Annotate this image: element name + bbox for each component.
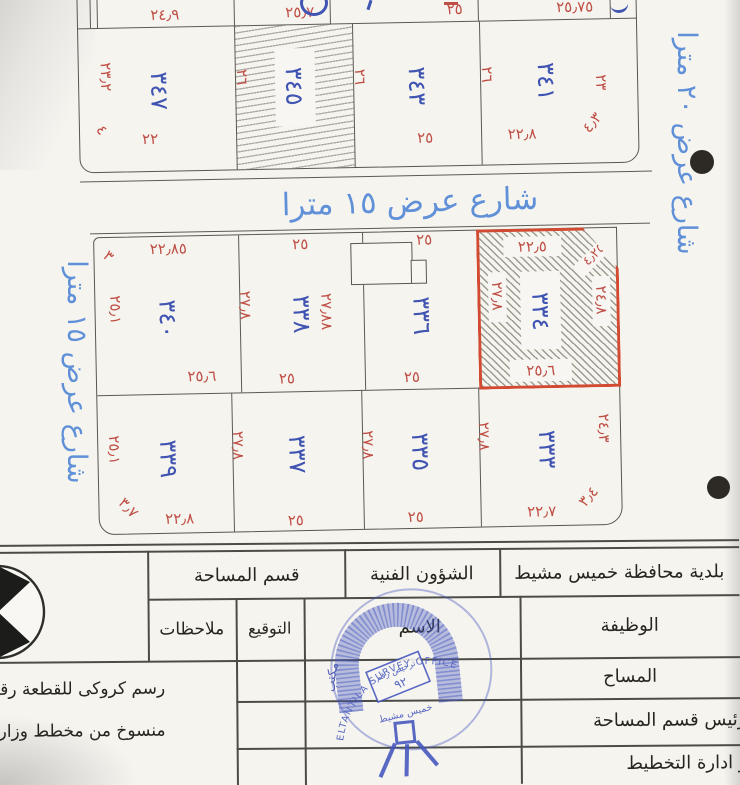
plot-number: ٣٣٥ [406, 419, 435, 484]
divider-stub [96, 0, 98, 28]
dim-side: ٢٧٫٨ [489, 274, 506, 318]
dim-side: ٢٧٫٨ [230, 423, 247, 467]
block-lower: ٢٢٫٥ ٤٫٢٥ ٢٧٫٨ ٢٤٫٨ ٣٣٤ ٢٥٫٦ ٢٢٫٨٥ ٢٥ ٢٥… [93, 227, 623, 535]
column-notes: ملاحظات [148, 614, 236, 645]
plot-number: ٣٤٠ [153, 287, 182, 352]
plot-number: ٣٣٩ [154, 427, 183, 492]
plot-number: ٣٤٧ [145, 59, 174, 124]
plot-notch-step [411, 260, 427, 284]
dim-bottom: ٢٥٫٦ [180, 368, 224, 385]
note-line: رسم كروكى للقطعة رقم [0, 676, 165, 704]
note-line: منسوخ من مخطط وزارة ال [0, 718, 166, 746]
dim-side: ٢٧٫٨ [476, 414, 493, 458]
dim-bottom: ٢٢٫٨ [500, 125, 544, 142]
dim-top: ٢٢٫٨٥ [146, 240, 190, 257]
divider-stub [477, 0, 479, 21]
stamp-theodolite-icon [375, 719, 438, 779]
plot-number: ٣٤١ [532, 49, 561, 114]
dim-side: ٢٦ [352, 55, 369, 99]
dim-right: ٢٤٫٣ [596, 406, 613, 450]
plot-number: ٣٤٣ [403, 54, 432, 119]
column-signature: التوقيع [236, 614, 304, 645]
divider-stub [329, 0, 331, 24]
plot-number: ٣٤٥ [280, 54, 309, 119]
north-arrow-icon [0, 562, 48, 662]
dim-top: ٢٤٫٩ [143, 6, 187, 23]
dim-side: ٢٦ [479, 52, 496, 96]
dim-bottom: ٢٢٫٨ [158, 510, 202, 527]
plot-number: ٣٣٣ [533, 417, 562, 482]
dim-left: ٢٥٫١ [107, 288, 124, 332]
highlighted-plot: ٢٢٫٥ ٤٫٢٥ ٢٧٫٨ ٢٤٫٨ ٣٣٤ ٢٥٫٦ [476, 227, 621, 390]
survey-sketch-sheet: ٢٤٫٩ ٢٥٫٧ ٢٥ ٢٥٫٧٥ ٢٦ ٢٦ ٢٦ ٢٣٫٢ ٤ ٢٣ ٤٫… [0, 0, 740, 785]
dim-bottom: ٢٥ [265, 370, 309, 387]
dim-top: ٢٥ [402, 231, 446, 248]
cutoff-mark [444, 2, 458, 5]
plot-notch [350, 242, 413, 285]
dim-bottom: ٢٥ [394, 508, 438, 525]
dim-bottom: ٢٥ [274, 512, 318, 529]
table-line [0, 546, 739, 553]
dim-side: ٢٧٫٨٨ [318, 289, 335, 333]
plot-number: ٣٣٦ [407, 283, 436, 348]
dim-bottom: ٢٥٫٦ [519, 362, 563, 379]
dim-bottom: ٢٥ [403, 129, 447, 146]
dim-bottom: ٢٢٫٧ [519, 503, 563, 520]
table-line [303, 598, 306, 785]
dim-top: ٢٢٫٥ [510, 238, 554, 255]
street-label-right: شارع عرض ٢٠ مترا [646, 12, 702, 274]
punch-hole [690, 150, 714, 174]
punch-hole [707, 476, 730, 499]
divider-stub [89, 0, 91, 28]
dim-corner: ٣٫٧ [112, 491, 144, 524]
dim-corner: ٤٫٣ [573, 102, 611, 143]
dim-side: ٢٤٫٨ [593, 278, 610, 322]
dim-corner: ٣٫٤ [572, 480, 604, 513]
column-role: الوظيفة [520, 610, 740, 642]
dim-corner: ٤٫٢٥ [573, 234, 615, 276]
dim-right: ٢٣ [593, 60, 610, 104]
dim-side: ٢٧٫٨ [360, 423, 377, 467]
role-planning-director: مدير ادارة التخطيط [521, 750, 740, 778]
divider-stub [233, 0, 235, 25]
street-label-left: شارع عرض ١٥ مترا [38, 243, 92, 501]
header-municipality: بلدية محافظة خميس مشيط [499, 555, 739, 591]
plot-number: ٣٣٨ [287, 282, 316, 347]
plot-number: ٣٣٧ [283, 422, 312, 487]
dim-left: ٢٥٫١ [106, 428, 123, 472]
plot-number: ٣٣٤ [526, 279, 555, 344]
table-line [0, 539, 739, 546]
role-head-survey: رئيس قسم المساحة [520, 707, 740, 735]
block-upper: ٢٤٫٩ ٢٥٫٧ ٢٥ ٢٥٫٧٥ ٢٦ ٢٦ ٢٦ ٢٣٫٢ ٤ ٢٣ ٤٫… [76, 0, 639, 173]
survey-office-stamp: مكتب الهيئة للمساحة ترخيص رقم ٩٢ خميس مش… [308, 567, 503, 784]
dim-top: ٢٥ [278, 236, 322, 253]
dim-bottom: ٢٢ [128, 131, 172, 148]
role-surveyor: المساح [520, 663, 740, 691]
dim-corner: ٣ [96, 243, 122, 268]
dim-top: ٢٥٫٧٥ [553, 0, 597, 15]
dim-corner: ٤ [88, 116, 115, 145]
dim-side: ٢٦ [234, 55, 251, 99]
dim-side: ٢٧٫٨ [237, 283, 254, 327]
dim-bottom: ٢٥ [390, 368, 434, 385]
dim-left: ٢٣٫٢ [98, 55, 115, 99]
street-label-middle: شارع عرض ١٥ مترا [245, 180, 576, 225]
